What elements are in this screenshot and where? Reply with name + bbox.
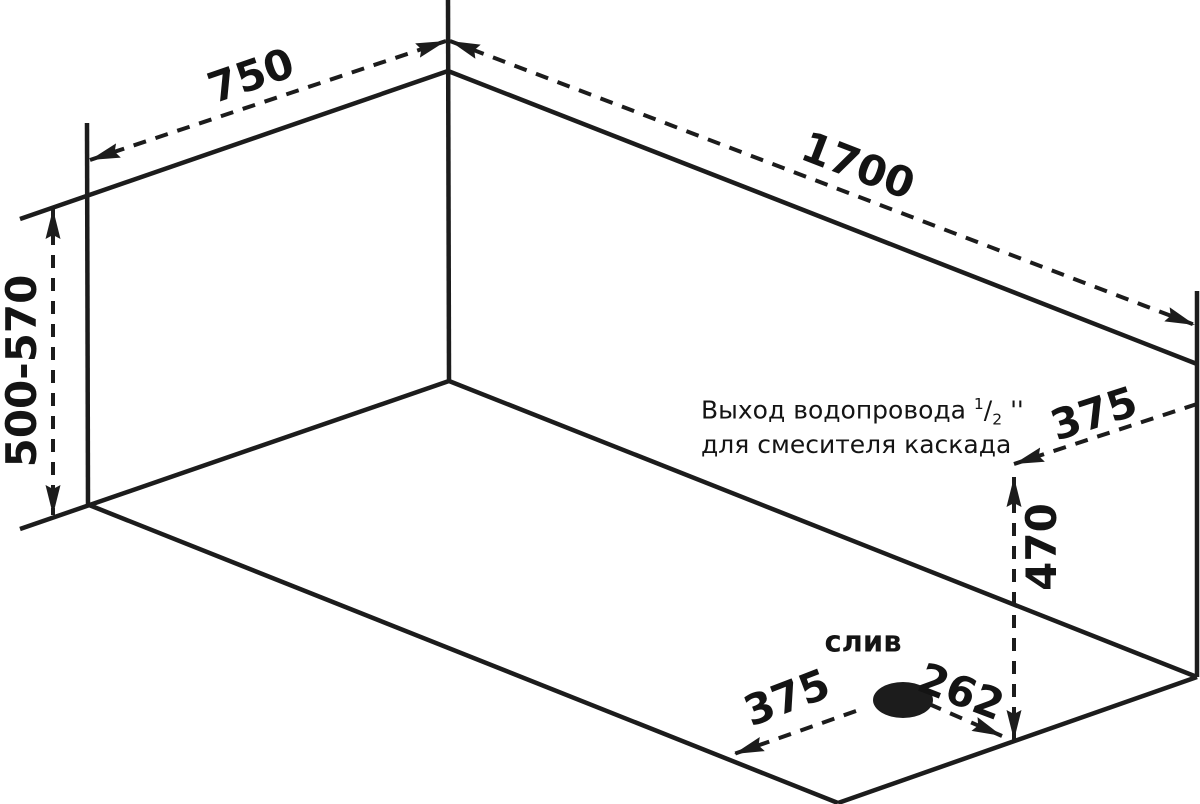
fraction-numerator: 1 [974, 395, 984, 413]
edge-top-right [448, 71, 1197, 364]
annotation-line-1: Выход водопровода 1/2 '' [701, 391, 1024, 432]
dim-line-1700 [450, 41, 1195, 325]
edge-bottom-back-left [20, 381, 449, 529]
annotation-line-2: для смесителя каскада [701, 432, 1024, 458]
fraction-denominator: 2 [992, 410, 1002, 428]
drain-caption: слив [824, 628, 901, 657]
inch-marks: '' [1010, 395, 1024, 424]
edge-bottom-front-left [89, 505, 838, 803]
technical-drawing-canvas: 750 1700 500-570 375 470 слив 375 262 Вы… [0, 0, 1200, 804]
water-outlet-annotation: Выход водопровода 1/2 '' для смесителя к… [701, 391, 1024, 458]
fraction-slash: / [984, 395, 992, 424]
edge-left-vertical [87, 123, 88, 505]
dim-label-height-500-570: 500-570 [1, 275, 43, 468]
annotation-line1-text: Выход водопровода [701, 395, 974, 424]
dim-label-outlet-height-470: 470 [1021, 503, 1063, 591]
edge-back-vertical [448, 0, 449, 381]
